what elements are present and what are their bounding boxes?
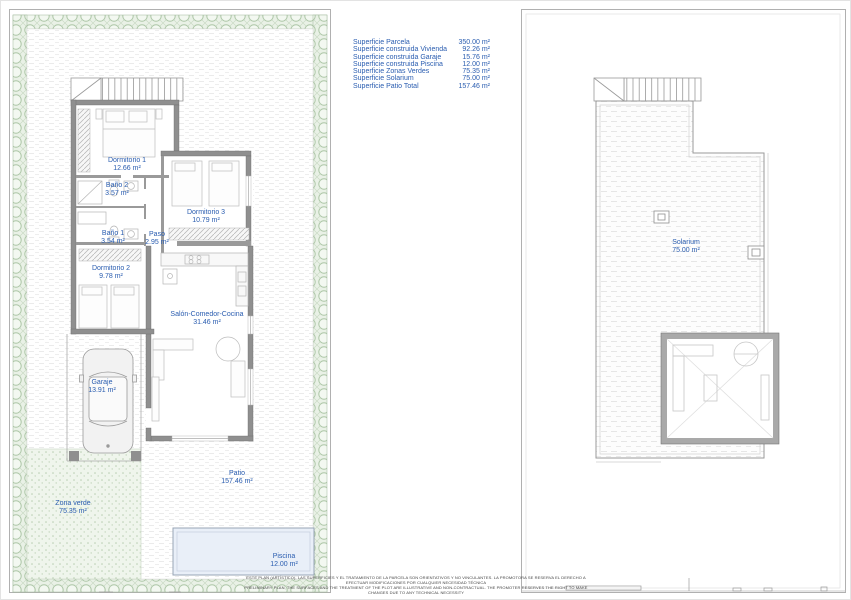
- disclaimer-line-es: ESTE PLAN (ARTÍSTICO), LAS SUPERFICIES Y…: [238, 575, 594, 585]
- surface-value: 15.76 m²: [462, 54, 490, 61]
- disclaimer-line-en: PRELIMINARY PLAN, THE SURFACES AND THE T…: [238, 585, 594, 595]
- roof-plan: [521, 9, 846, 593]
- surface-value: 75.00 m²: [462, 75, 490, 82]
- surface-row: Superficie Parcela 350.00 m²: [353, 39, 490, 46]
- surface-label: Superficie construida Piscina: [353, 61, 443, 68]
- carport-post: [131, 451, 141, 461]
- sideboard: [152, 377, 159, 421]
- plan-sheet: Superficie Parcela 350.00 m² Superficie …: [0, 0, 851, 600]
- sofa: [153, 339, 193, 350]
- toilet: [110, 186, 118, 196]
- pillow: [114, 287, 134, 295]
- exterior-stairs: [71, 78, 183, 101]
- bathtub: [78, 212, 106, 224]
- surface-value: 157.46 m²: [458, 83, 490, 90]
- surface-label: Superficie construida Garaje: [353, 54, 441, 61]
- surface-label: Superficie Parcela: [353, 39, 410, 46]
- pillow: [175, 163, 195, 171]
- pillow: [82, 287, 102, 295]
- toilet: [110, 226, 118, 236]
- toilet-tank: [109, 237, 119, 242]
- roof-room: [661, 333, 779, 444]
- green-zone-area: [27, 449, 141, 579]
- surface-value: 12.00 m²: [462, 61, 490, 68]
- roof-stairs: [594, 78, 701, 101]
- armchair: [231, 361, 245, 397]
- pillow: [106, 111, 124, 122]
- car: [80, 349, 137, 453]
- surface-value: 350.00 m²: [458, 39, 490, 46]
- nightstand: [156, 109, 162, 119]
- surface-row: Superficie Solarium 75.00 m²: [353, 75, 490, 82]
- surface-label: Superficie Patio Total: [353, 83, 419, 90]
- surface-row: Superficie Zonas Verdes 75.35 m²: [353, 68, 490, 75]
- pillow: [129, 111, 147, 122]
- surface-label: Superficie Solarium: [353, 75, 414, 82]
- toilet-tank: [109, 180, 119, 185]
- pillow: [212, 163, 232, 171]
- disclaimer-text: ESTE PLAN (ARTÍSTICO), LAS SUPERFICIES Y…: [238, 575, 594, 595]
- surface-value: 75.35 m²: [462, 68, 490, 75]
- carport-post: [69, 451, 79, 461]
- skylight-inner: [752, 249, 760, 256]
- surface-table: Superficie Parcela 350.00 m² Superficie …: [353, 39, 490, 90]
- appliance: [163, 269, 177, 284]
- surface-label: Superficie Zonas Verdes: [353, 68, 429, 75]
- surface-row: Superficie Patio Total 157.46 m²: [353, 83, 490, 90]
- surface-row: Superficie construida Garaje 15.76 m²: [353, 54, 490, 61]
- pool: [173, 528, 314, 575]
- surface-row: Superficie construida Piscina 12.00 m²: [353, 61, 490, 68]
- surface-label: Superficie construida Vivienda: [353, 46, 447, 53]
- surface-value: 92.26 m²: [462, 46, 490, 53]
- surface-row: Superficie construida Vivienda 92.26 m²: [353, 46, 490, 53]
- sofa: [153, 350, 164, 380]
- nightstand: [96, 109, 102, 119]
- ground-floor-plan: [9, 9, 331, 593]
- skylight-inner: [658, 214, 665, 220]
